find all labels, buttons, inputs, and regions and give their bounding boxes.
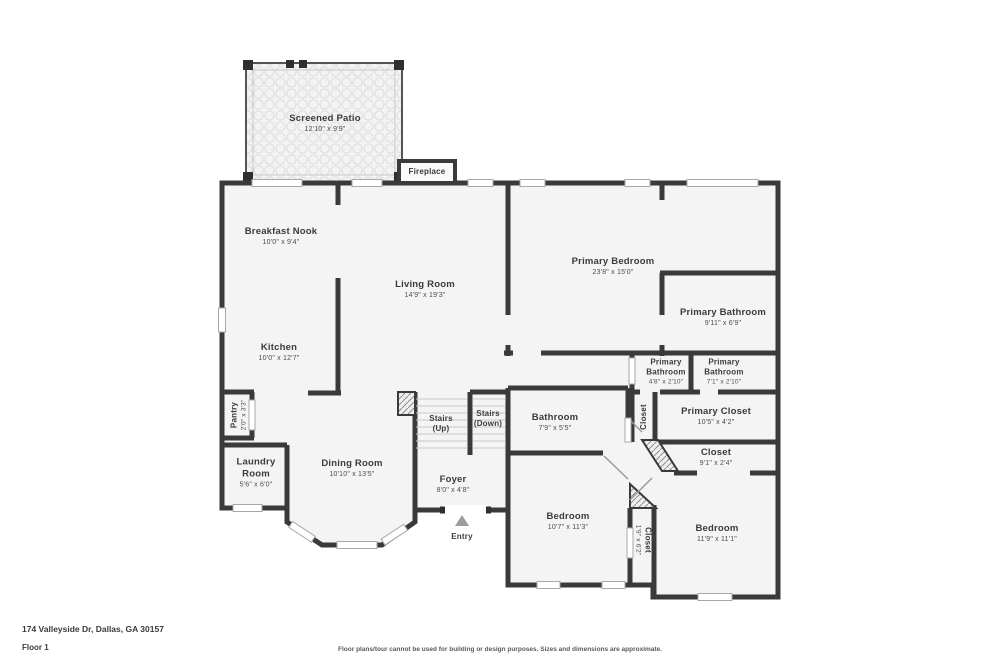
floor-indicator: Floor 1 (22, 643, 49, 652)
entry-arrow-icon (455, 515, 469, 526)
floor-plan-drawing (0, 0, 1000, 667)
disclaimer-text: Floor plans/tour cannot be used for buil… (338, 646, 662, 653)
entry-door (440, 505, 491, 526)
property-address: 174 Valleyside Dr, Dallas, GA 30157 (22, 624, 164, 634)
floor-plan-canvas: Screened Patio12'10" x 9'9" Fireplace Br… (0, 0, 1000, 667)
fireplace-structure (399, 161, 455, 183)
screened-patio-structure (243, 60, 404, 182)
